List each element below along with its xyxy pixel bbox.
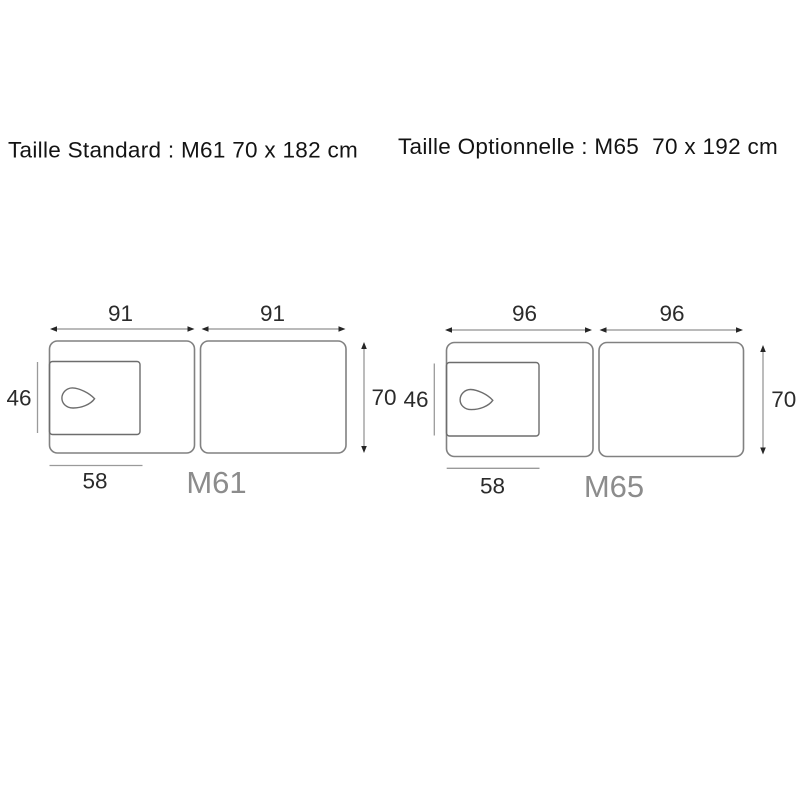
svg-text:70: 70 (371, 385, 396, 410)
svg-text:58: 58 (480, 474, 505, 499)
svg-text:46: 46 (403, 387, 428, 412)
svg-text:Taille Standard : M61 70 x 182: Taille Standard : M61 70 x 182 cm (8, 138, 358, 163)
svg-text:96: 96 (512, 301, 537, 326)
svg-text:91: 91 (260, 301, 285, 326)
svg-text:M65: M65 (584, 469, 644, 504)
svg-text:96: 96 (659, 301, 684, 326)
svg-text:91: 91 (108, 301, 133, 326)
svg-text:M61: M61 (186, 465, 246, 500)
svg-text:Taille Optionnelle : M65 70 x: Taille Optionnelle : M65 70 x 192 cm (398, 134, 778, 159)
svg-text:58: 58 (82, 469, 107, 494)
svg-text:70: 70 (771, 387, 796, 412)
svg-text:46: 46 (6, 386, 31, 411)
